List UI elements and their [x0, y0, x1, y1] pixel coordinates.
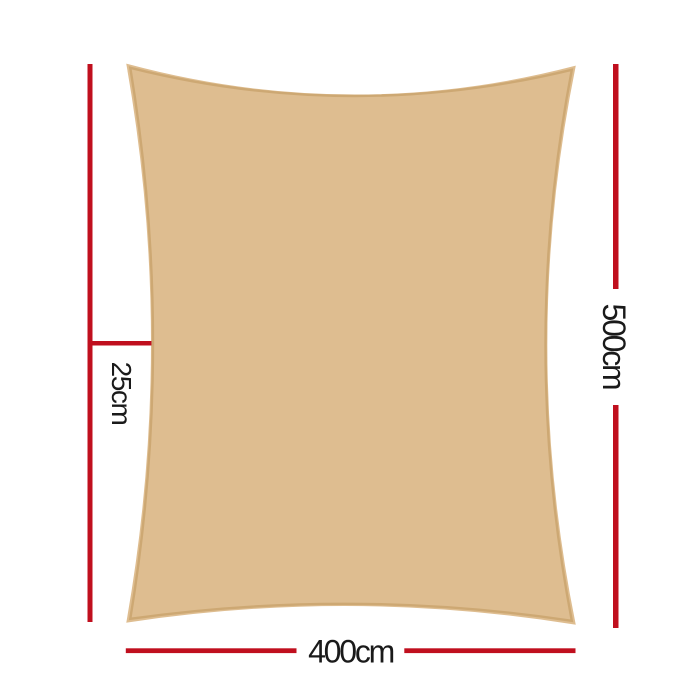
svg-text:400cm: 400cm: [308, 634, 394, 670]
svg-text:25cm: 25cm: [106, 362, 137, 425]
svg-text:500cm: 500cm: [596, 303, 632, 389]
